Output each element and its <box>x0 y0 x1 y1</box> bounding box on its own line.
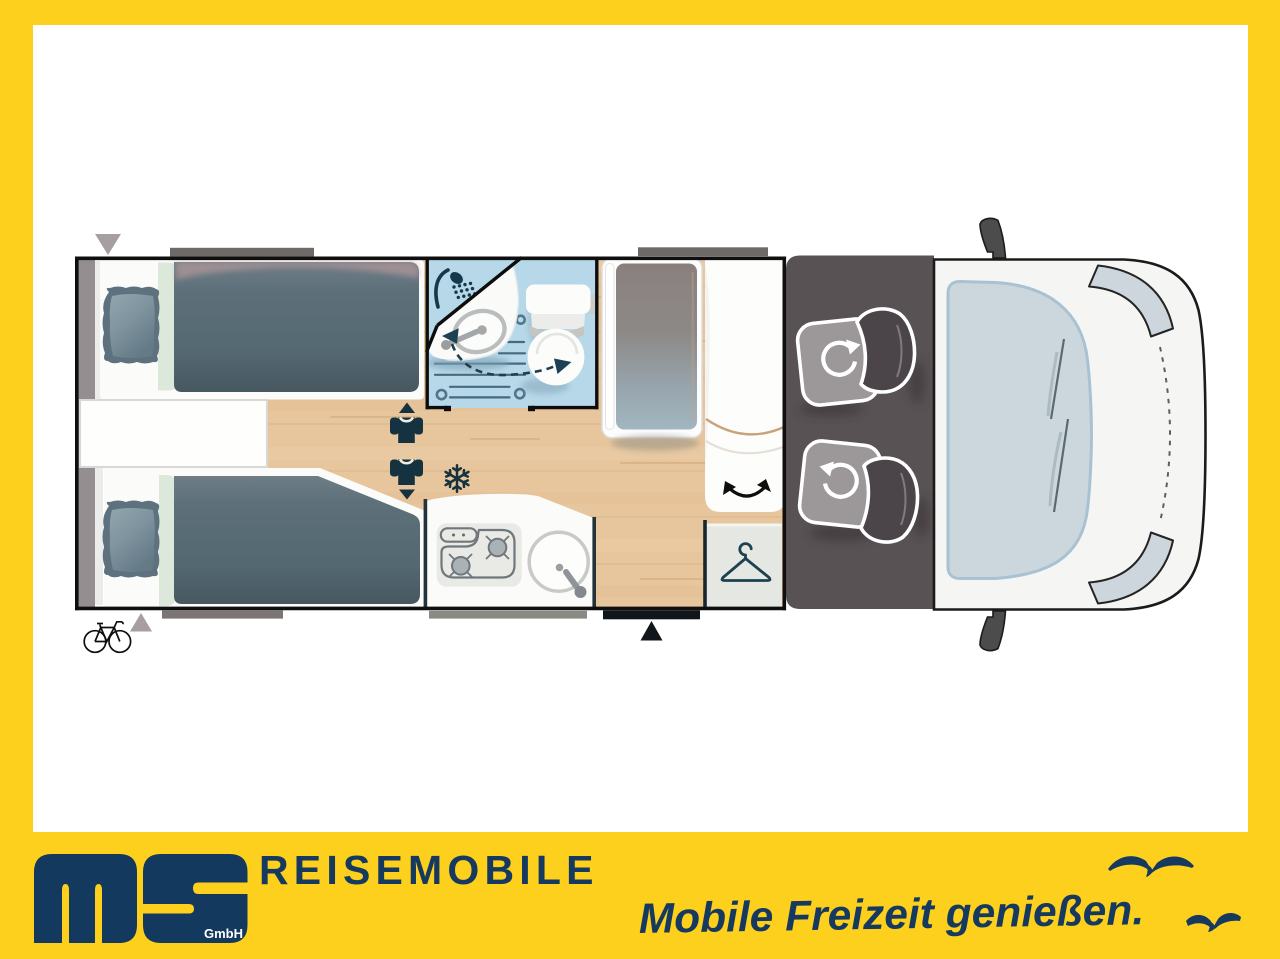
svg-text:GmbH: GmbH <box>204 926 243 941</box>
svg-text:Mobile Freizeit genießen.: Mobile Freizeit genießen. <box>638 887 1144 943</box>
svg-text:REISEMOBILE: REISEMOBILE <box>259 847 599 893</box>
